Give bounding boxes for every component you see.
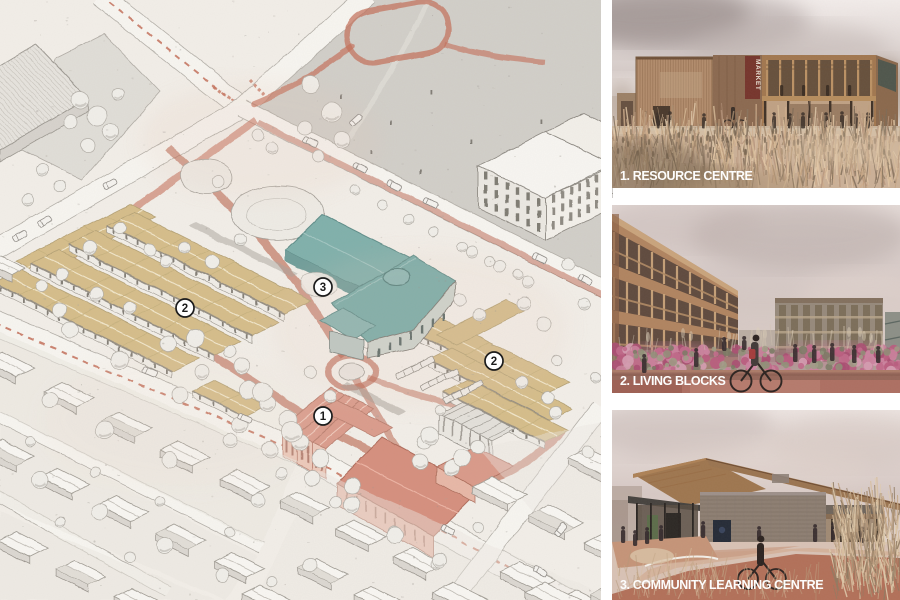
svg-text:2: 2 xyxy=(182,303,188,315)
svg-text:2: 2 xyxy=(491,356,497,368)
svg-text:3: 3 xyxy=(320,282,326,294)
svg-text:1: 1 xyxy=(320,411,327,423)
